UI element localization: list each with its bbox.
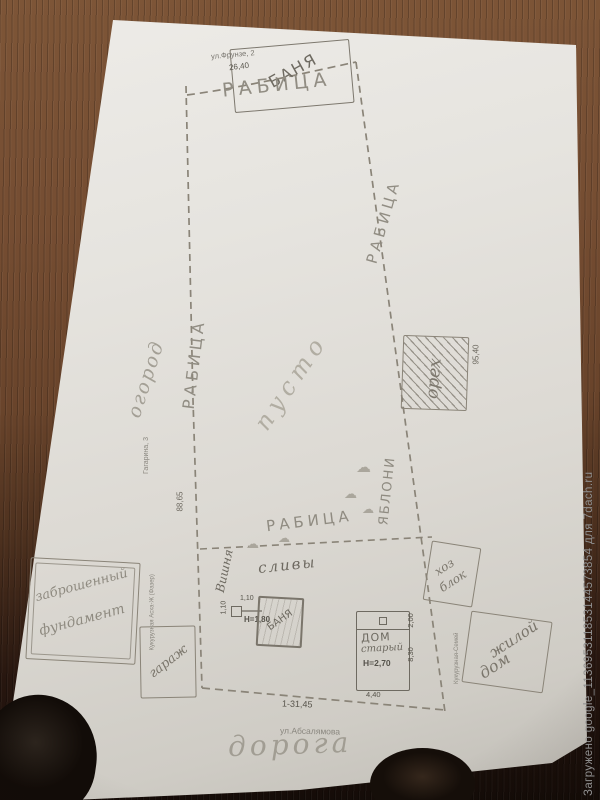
- hatched-shed-box: [401, 335, 470, 411]
- print-label-gagarina: Гагарина, 3: [143, 437, 150, 474]
- bath-square-symbol: [231, 606, 242, 617]
- dim-left-label: 88,65: [176, 491, 185, 511]
- road-label: дорога: [227, 726, 352, 763]
- bath-dim-side: 1,10: [220, 601, 227, 615]
- photo-scene: БАНЯ ул.Фрунзе, 2 26,40 РАБИЦА РАБИЦА РА…: [0, 0, 600, 800]
- house-length-dim: 8,30: [406, 647, 415, 662]
- porch-square-symbol: [379, 617, 387, 625]
- plum-tree-doodle: ☁: [246, 536, 259, 552]
- plum-tree-doodle: ☁: [278, 531, 290, 545]
- dim-right-label: 95,40: [472, 344, 481, 364]
- old-house-height-label: Н=2,70: [363, 658, 391, 668]
- apple-tree-doodle: ☁: [362, 502, 374, 516]
- old-house-label-line2: старый: [361, 642, 404, 655]
- bath-dim-top: 1,10: [240, 595, 254, 602]
- fence-line-bottom: [202, 688, 445, 710]
- house-porch-dim: 2,00: [406, 613, 415, 628]
- apple-tree-doodle: ☁: [344, 486, 357, 502]
- bath-box: БАНЯ: [256, 596, 305, 648]
- print-label-left: Кукурузная Асха-Ж (Фазер): [150, 556, 156, 651]
- house-width-dim: 4,40: [366, 690, 381, 699]
- dim-bottom-label: 1-31,45: [282, 698, 313, 709]
- watermark-text: Загружено google_113695311853144573854 д…: [583, 326, 595, 796]
- apple-tree-doodle: ☁: [356, 458, 371, 476]
- bath-label: БАНЯ: [265, 608, 294, 633]
- print-label-right: Кукурузная-Семей: [454, 594, 460, 684]
